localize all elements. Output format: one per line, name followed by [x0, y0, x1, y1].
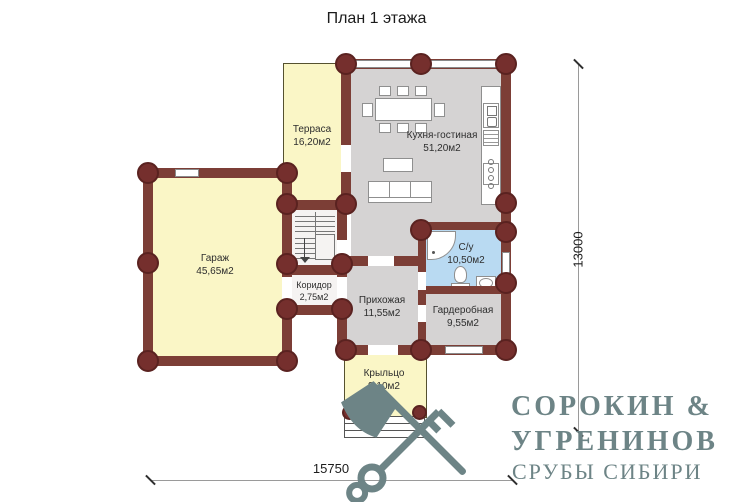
log-joint	[410, 53, 432, 75]
floor-plan-page: План 1 этажа	[0, 0, 753, 502]
window-kitchen-north-2	[429, 60, 497, 68]
door-hallway-porch	[368, 345, 398, 355]
dining-chair	[379, 86, 391, 96]
page-title: План 1 этажа	[0, 10, 753, 28]
kitchen-sink	[483, 103, 499, 128]
log-joint	[276, 350, 298, 372]
log-joint	[410, 219, 432, 241]
log-joint	[137, 350, 159, 372]
label-hallway: Прихожая11,55м2	[342, 294, 422, 320]
dimension-height-label: 13000	[571, 220, 586, 280]
dining-chair	[434, 103, 445, 117]
log-joint	[276, 253, 298, 275]
log-joint	[335, 53, 357, 75]
dining-chair	[362, 103, 373, 117]
crossed-key-axe-watermark-icon	[332, 356, 532, 502]
wall-stair-east	[337, 202, 347, 348]
log-joint	[335, 193, 357, 215]
door-terrace-kitchen	[341, 145, 351, 172]
dining-chair	[379, 123, 391, 133]
window-wardrobe	[445, 346, 483, 354]
wall-garage-bottom	[143, 356, 292, 366]
log-joint	[495, 192, 517, 214]
wall-garage-top	[143, 168, 292, 178]
log-joint	[331, 253, 353, 275]
stair-landing	[315, 234, 335, 260]
window-kitchen-north-1	[353, 60, 414, 68]
sofa	[368, 181, 432, 203]
label-kitchen-living: Кухня-гостиная51,20м2	[392, 129, 492, 155]
door-kitchen-hallway	[368, 256, 394, 266]
label-corridor: Коридор2,75м2	[284, 280, 344, 303]
window-garage	[175, 169, 199, 177]
coffee-table	[383, 158, 413, 172]
log-joint	[137, 162, 159, 184]
dining-chair	[415, 86, 427, 96]
logo-tagline: СРУБЫ СИБИРИ	[512, 459, 702, 485]
door-hallway-bathroom	[418, 272, 426, 290]
label-terrace: Терраса16,20м2	[272, 123, 352, 149]
dining-table	[375, 98, 432, 121]
label-wardrobe: Гардеробная9,55м2	[418, 304, 508, 330]
log-joint	[276, 193, 298, 215]
logo-company-line1: СОРОКИН &	[511, 391, 713, 423]
toilet-bowl	[454, 266, 467, 283]
log-joint	[137, 252, 159, 274]
log-joint	[495, 272, 517, 294]
stove	[483, 163, 499, 185]
label-garage: Гараж45,65м2	[175, 252, 255, 278]
dining-chair	[397, 86, 409, 96]
label-bathroom: С/у10,50м2	[431, 241, 501, 267]
stair-arrow-head	[300, 257, 310, 263]
logo-company-line2: УГРЕНИНОВ	[511, 426, 718, 458]
stair-arrow-shaft	[304, 238, 305, 258]
log-joint	[495, 53, 517, 75]
log-joint	[495, 221, 517, 243]
log-joint	[276, 162, 298, 184]
